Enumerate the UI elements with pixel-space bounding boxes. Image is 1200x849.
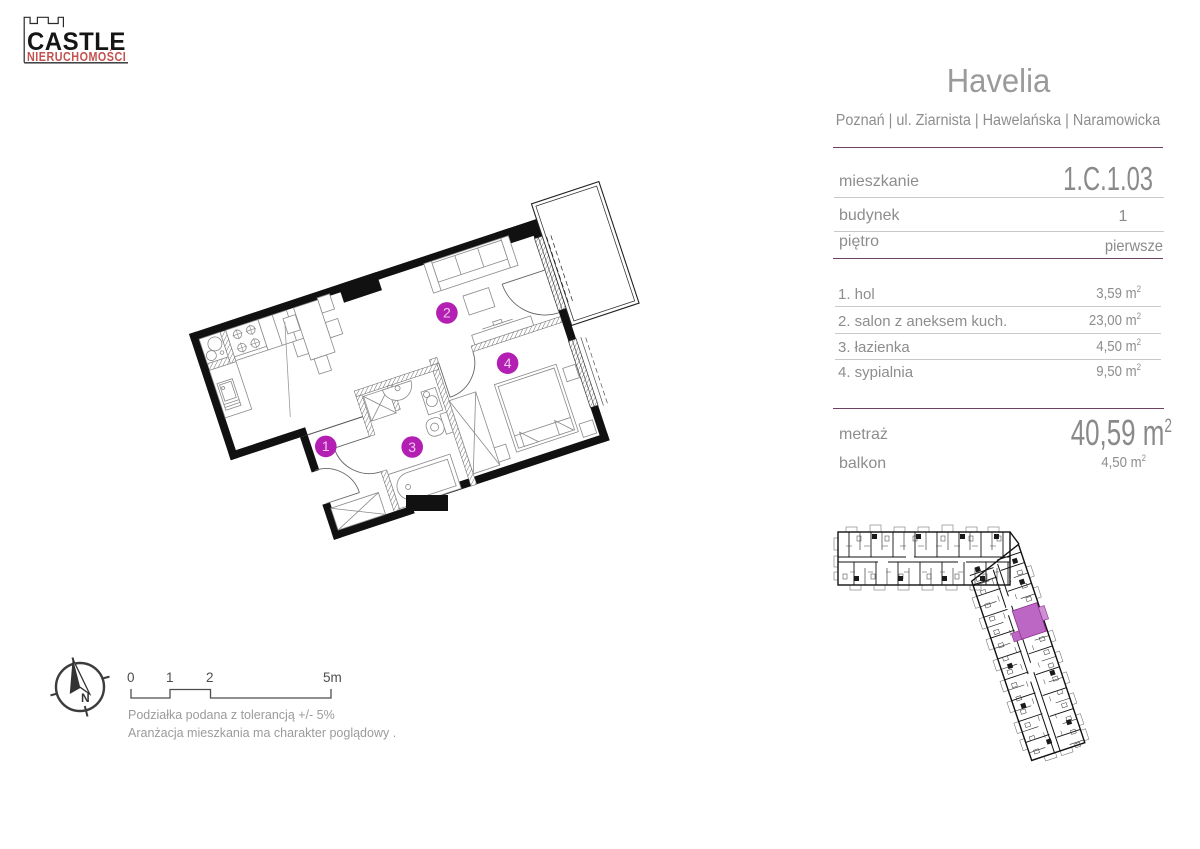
svg-text:1: 1 — [166, 670, 174, 685]
svg-text:N: N — [81, 691, 90, 705]
svg-text:1: 1 — [322, 438, 330, 454]
svg-text:5m: 5m — [323, 670, 342, 685]
svg-text:0: 0 — [127, 670, 135, 685]
svg-text:2: 2 — [443, 305, 451, 321]
svg-text:2: 2 — [206, 670, 214, 685]
svg-text:4: 4 — [504, 355, 512, 371]
svg-text:3: 3 — [408, 439, 416, 455]
